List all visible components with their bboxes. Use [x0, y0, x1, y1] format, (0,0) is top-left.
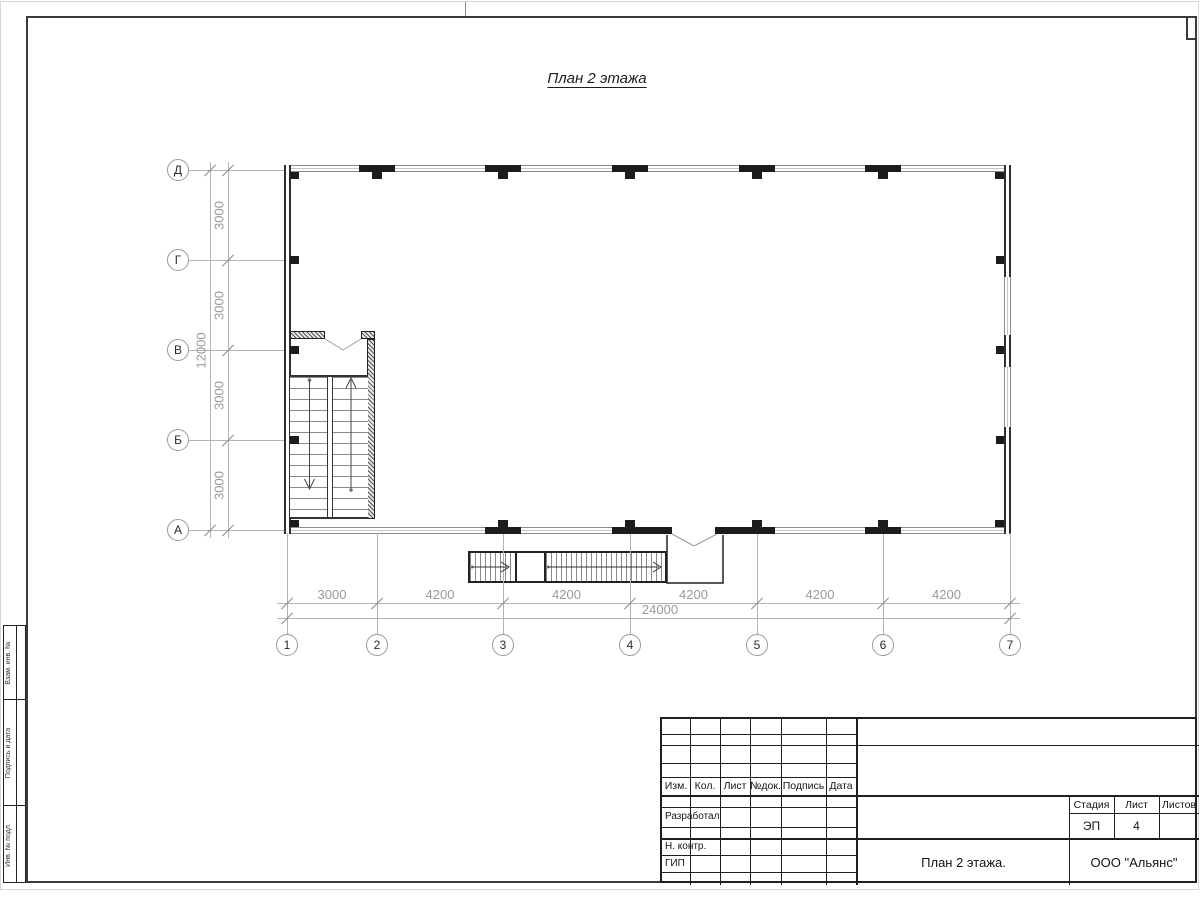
dim-line-h2	[277, 618, 1020, 619]
axis-bubble-col-5: 5	[746, 634, 768, 656]
axis-line-col-4	[630, 533, 631, 634]
pilaster-top-stub	[752, 172, 762, 179]
side-stamp-label-3: Инв. № подл.	[5, 808, 15, 882]
external-stair-flight-2	[546, 553, 665, 581]
pilaster-top-stub	[878, 172, 888, 179]
axis-line-col-3	[503, 533, 504, 634]
dim-line-v2	[210, 162, 211, 538]
drawing-sheet: План 2 этажа 300042004200	[0, 0, 1200, 900]
pilaster-bottom-stub	[752, 520, 762, 527]
pilaster-bottom-stub	[498, 520, 508, 527]
dim-h-4: 4200	[790, 587, 850, 602]
tb-col-ndoc: №док.	[750, 780, 781, 792]
axis-bubble-row-Д: Д	[167, 159, 189, 181]
axis-bubble-col-2: 2	[366, 634, 388, 656]
tb-stage-label: Стадия	[1069, 799, 1114, 811]
pilaster-left-stub	[290, 346, 299, 354]
pilaster-top-bar	[485, 165, 521, 172]
tb-hline	[662, 827, 856, 828]
dim-h-5: 4200	[917, 587, 977, 602]
wall-right-solid-3	[1004, 427, 1011, 534]
dim-v-3: 3000	[212, 456, 227, 516]
pilaster-bottom-stub	[878, 520, 888, 527]
dim-h-total: 24000	[630, 602, 690, 617]
pilaster-bottom-bar	[715, 527, 775, 534]
axis-bubble-row-Б: Б	[167, 429, 189, 451]
tb-hline	[662, 777, 856, 778]
tb-role-razrabotal: Разработал	[665, 811, 723, 822]
axis-bubble-col-4: 4	[619, 634, 641, 656]
tb-hline	[662, 807, 856, 808]
external-stair-flight-1	[470, 553, 515, 581]
stairwell-wall-right	[367, 339, 375, 519]
side-stamp-box-2: Подпись и дата	[3, 699, 26, 806]
tb-company: ООО "Альянс"	[1069, 855, 1199, 870]
axis-line-row-А	[189, 530, 284, 531]
pilaster-top-bar	[865, 165, 901, 172]
tb-col-podpis: Подпись	[781, 780, 826, 792]
tb-hline	[662, 795, 1199, 797]
titleblock: Изм. Кол. Лист №док. Подпись Дата Разраб…	[660, 717, 1197, 883]
tb-vline	[781, 719, 782, 885]
dim-h-0: 3000	[302, 587, 362, 602]
pilaster-top-bar	[612, 165, 648, 172]
dim-h-2: 4200	[537, 587, 597, 602]
pilaster-left-stub	[290, 436, 299, 444]
side-stamp-box-1: Взам. инв. №	[3, 625, 26, 700]
fold-mark	[465, 2, 466, 16]
dim-v-0: 3000	[212, 186, 227, 246]
drawing-title: План 2 этажа	[447, 70, 747, 87]
side-stamp-label-1: Взам. инв. №	[5, 628, 15, 698]
external-stair-landing	[515, 553, 546, 581]
tb-sheet-label: Лист	[1114, 799, 1159, 811]
axis-bubble-row-А: А	[167, 519, 189, 541]
corner-stub	[995, 520, 1004, 527]
axis-line-row-Д	[189, 170, 284, 171]
axis-bubble-col-6: 6	[872, 634, 894, 656]
tb-hline	[1069, 813, 1199, 814]
pilaster-right-stub	[996, 346, 1004, 354]
door-opening-bottom	[672, 526, 715, 535]
tb-stage-value: ЭП	[1069, 819, 1114, 833]
wall-right-solid-1	[1004, 165, 1011, 277]
top-right-cell	[1186, 16, 1197, 40]
stair-flight-down	[290, 377, 327, 517]
pilaster-right-stub	[996, 256, 1004, 264]
tb-hline	[662, 763, 856, 764]
axis-bubble-col-7: 7	[999, 634, 1021, 656]
corner-stub	[290, 520, 299, 527]
axis-line-col-5	[757, 533, 758, 634]
side-stamp-label-2: Подпись и дата	[5, 703, 15, 803]
stairwell-wall-top-right	[361, 331, 375, 339]
corner-stub	[290, 172, 299, 179]
pilaster-top-bar	[359, 165, 395, 172]
tb-col-kol: Кол.	[690, 780, 720, 792]
dim-h-3: 4200	[664, 587, 724, 602]
pilaster-bottom-bar	[485, 527, 521, 534]
axis-bubble-col-1: 1	[276, 634, 298, 656]
stairwell-stairs	[290, 375, 368, 519]
stair-flight-up	[333, 377, 368, 517]
pilaster-top-stub	[372, 172, 382, 179]
tb-role-nkontr: Н. контр.	[665, 841, 723, 852]
pilaster-top-bar	[739, 165, 775, 172]
stairwell-wall-top-left	[290, 331, 325, 339]
axis-line-row-Г	[189, 260, 284, 261]
tb-hline	[662, 872, 856, 873]
side-stamp-divider	[16, 625, 17, 883]
tb-drawing-name: План 2 этажа.	[858, 855, 1069, 870]
tb-vline	[750, 719, 751, 885]
tb-sheet-value: 4	[1114, 819, 1159, 833]
wall-right-solid-2	[1004, 335, 1011, 367]
wall-right-window-1	[1004, 277, 1011, 335]
pilaster-left-stub	[290, 256, 299, 264]
dim-h-1: 4200	[410, 587, 470, 602]
dim-v-total: 12000	[194, 321, 209, 381]
tb-col-list: Лист	[720, 780, 750, 792]
tb-col-izm: Изм.	[662, 780, 690, 792]
corner-stub	[995, 172, 1004, 179]
axis-bubble-col-3: 3	[492, 634, 514, 656]
dim-v-1: 3000	[212, 276, 227, 336]
pilaster-bottom-bar	[865, 527, 901, 534]
tb-hline	[662, 855, 856, 856]
tb-hline	[662, 745, 1199, 746]
axis-bubble-row-В: В	[167, 339, 189, 361]
axis-bubble-row-Г: Г	[167, 249, 189, 271]
tb-hline	[662, 734, 856, 735]
side-stamp-box-3: Инв. № подл.	[3, 805, 26, 883]
axis-line-row-Б	[189, 440, 284, 441]
side-stamp: Взам. инв. № Подпись и дата Инв. № подл.	[3, 625, 26, 883]
external-stair	[468, 551, 667, 583]
axis-line-col-2	[377, 533, 378, 634]
tb-vline	[826, 719, 827, 885]
pilaster-right-stub	[996, 436, 1004, 444]
tb-sheets-label: Листов	[1159, 799, 1199, 811]
pilaster-top-stub	[498, 172, 508, 179]
tb-hline	[662, 838, 1199, 840]
dim-v-2: 3000	[212, 366, 227, 426]
pilaster-bottom-bar	[612, 527, 672, 534]
tb-col-data: Дата	[826, 780, 856, 792]
pilaster-bottom-stub	[625, 520, 635, 527]
pilaster-top-stub	[625, 172, 635, 179]
axis-line-col-6	[883, 533, 884, 634]
tb-role-gip: ГИП	[665, 858, 723, 869]
wall-right-window-2	[1004, 367, 1011, 427]
